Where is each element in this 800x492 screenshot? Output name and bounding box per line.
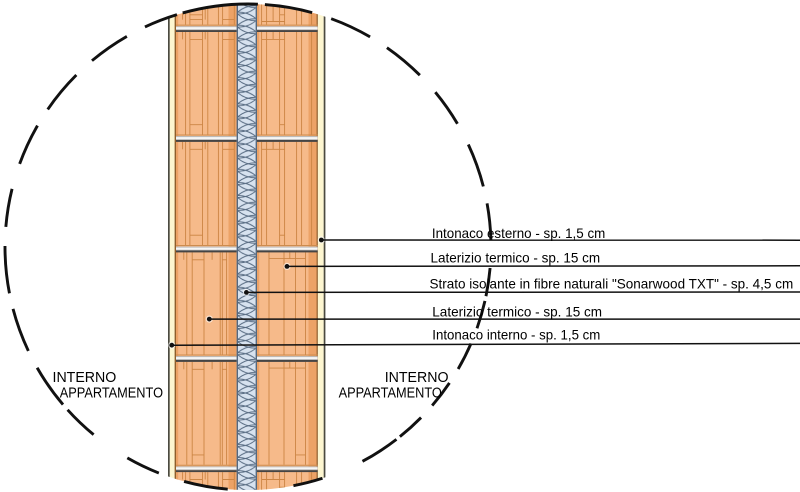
svg-text:Strato isolante in fibre natur: Strato isolante in fibre naturali "Sonar… bbox=[430, 277, 794, 292]
svg-text:Intonaco esterno - sp. 1,5 cm: Intonaco esterno - sp. 1,5 cm bbox=[432, 226, 605, 241]
svg-text:Laterizio termico - sp. 15 cm: Laterizio termico - sp. 15 cm bbox=[432, 304, 602, 319]
svg-text:APPARTAMENTO: APPARTAMENTO bbox=[339, 384, 442, 401]
svg-text:APPARTAMENTO: APPARTAMENTO bbox=[60, 384, 163, 401]
svg-text:Intonaco interno - sp. 1,5 cm: Intonaco interno - sp. 1,5 cm bbox=[432, 327, 600, 342]
svg-text:Laterizio termico - sp. 15 cm: Laterizio termico - sp. 15 cm bbox=[431, 251, 601, 266]
